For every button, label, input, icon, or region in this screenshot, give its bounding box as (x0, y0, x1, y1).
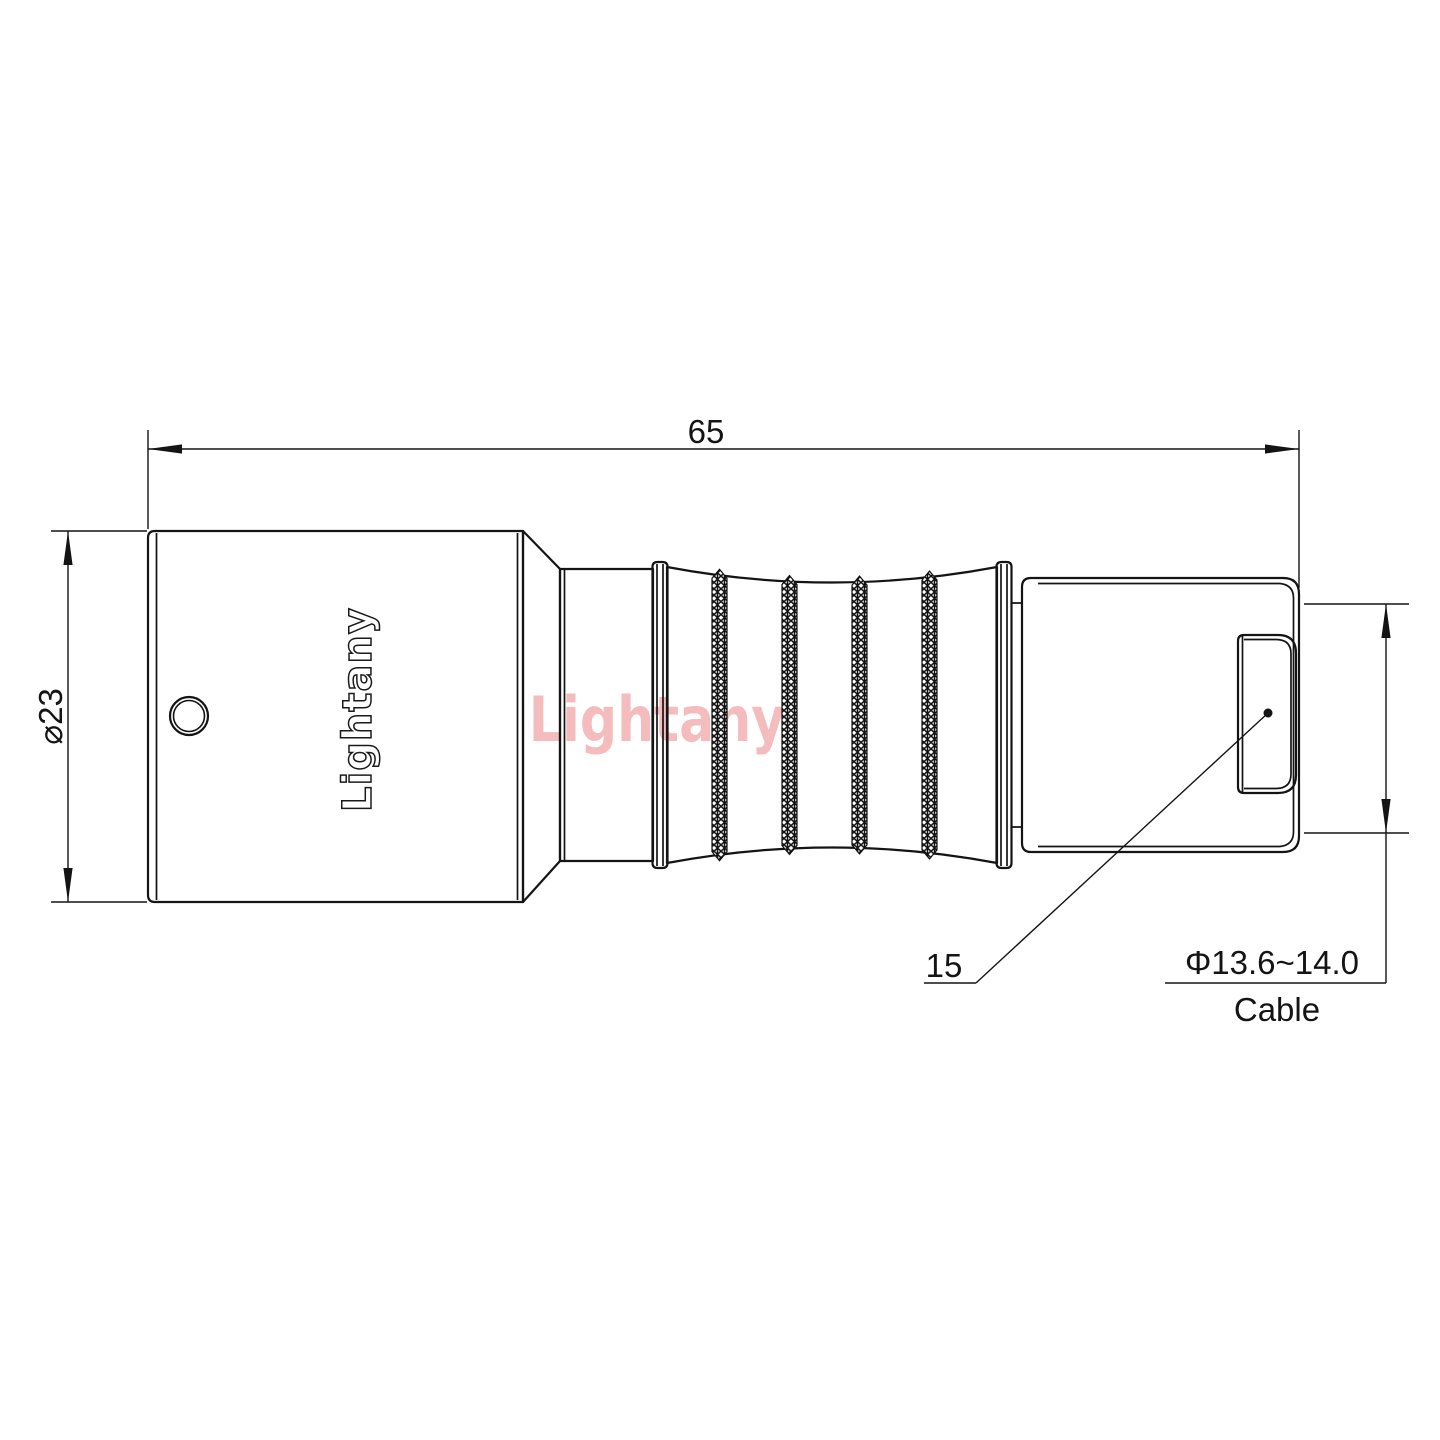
connector-technical-drawing: Lightany Lightany 65 ⌀23 (0, 0, 1440, 1440)
dimension-body-diameter: ⌀23 (32, 531, 147, 902)
dimension-label-overall-length: 65 (688, 413, 725, 450)
arrowhead-down-icon (1381, 799, 1390, 833)
arrowhead-up-icon (63, 531, 72, 565)
arrowhead-left-icon (148, 444, 182, 453)
leader-dot-icon (1264, 709, 1273, 718)
dimension-label-body-diameter: ⌀23 (32, 688, 69, 745)
dimension-label-cable-diameter: Φ13.6~14.0 (1185, 944, 1359, 981)
knurl-band (922, 571, 937, 859)
arrowhead-down-icon (63, 868, 72, 902)
brand-logo-text: Lightany (335, 607, 381, 812)
technical-drawing-page: Lightany Lightany 65 ⌀23 (0, 0, 1440, 1440)
knurl-band (712, 569, 727, 860)
arrowhead-right-icon (1265, 444, 1299, 453)
knurl-band (852, 576, 867, 854)
knurl-band (782, 576, 797, 855)
dimension-label-cable: Cable (1234, 991, 1320, 1028)
grip-ridge-right-fill (997, 562, 1012, 868)
arrowhead-up-icon (1381, 604, 1390, 638)
dimension-label-rear-length: 15 (926, 947, 963, 984)
